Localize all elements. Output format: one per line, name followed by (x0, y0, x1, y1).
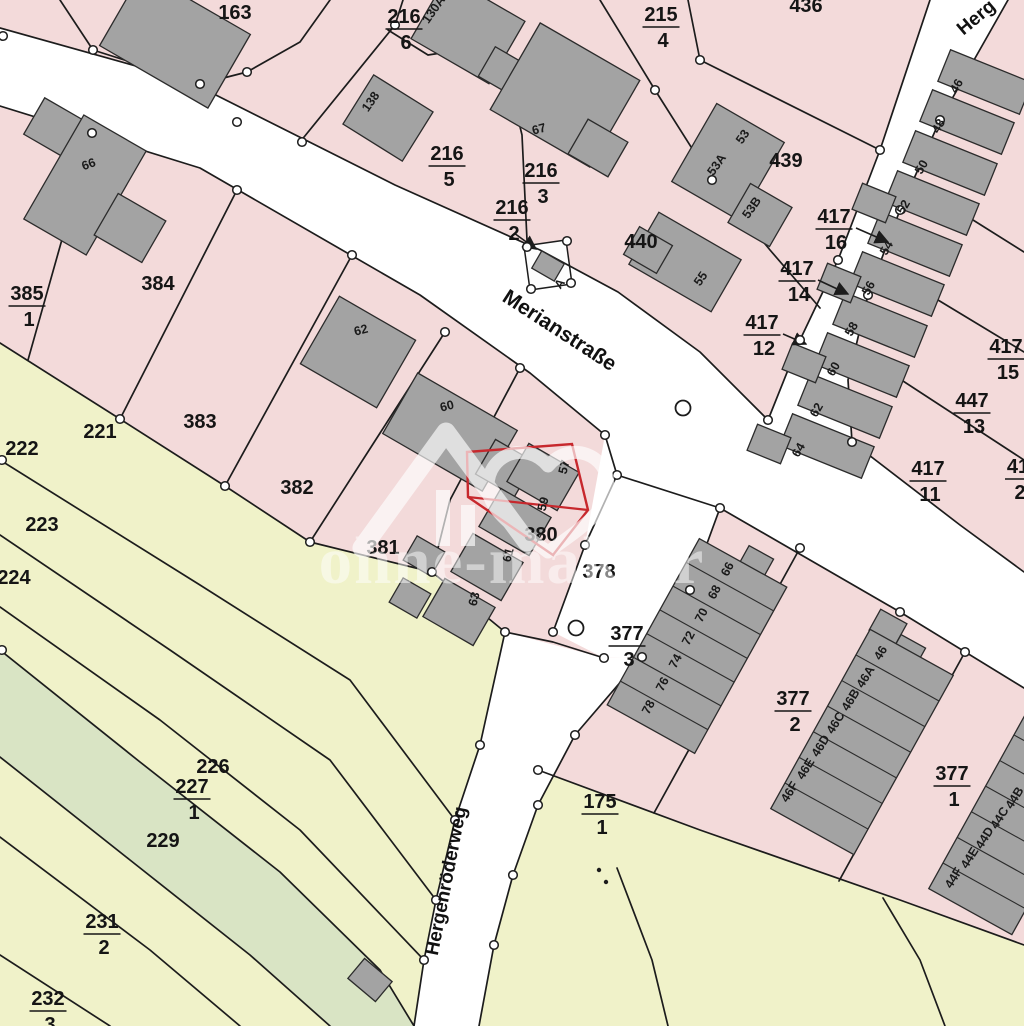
survey-marker (796, 544, 805, 553)
parcel-label: 226 (196, 756, 229, 778)
parcel-denominator: 16 (825, 232, 847, 254)
survey-marker (501, 628, 510, 637)
survey-marker (221, 482, 230, 491)
parcel-number: 377 (935, 763, 968, 785)
survey-marker (848, 438, 857, 447)
parcel-denominator: 3 (537, 186, 548, 208)
parcel-number: 232 (31, 988, 64, 1010)
parcel-number: 447 (955, 390, 988, 412)
parcel-denominator: 6 (400, 32, 411, 54)
parcel-label: 224 (0, 567, 32, 589)
survey-marker (571, 731, 580, 740)
parcel-label: 163 (218, 2, 251, 24)
parcel-number: 216 (430, 143, 463, 165)
parcel-denominator: 3 (44, 1014, 55, 1026)
parcel-number: 377 (776, 688, 809, 710)
survey-marker (243, 68, 252, 77)
parcel-denominator: 1 (596, 817, 607, 839)
parcel-label: 384 (141, 273, 175, 295)
parcel-number: 439 (769, 150, 802, 172)
survey-marker (601, 431, 610, 440)
survey-marker (534, 801, 543, 810)
parcel-number: 440 (624, 231, 657, 253)
survey-marker (567, 279, 576, 288)
parcel-number: 384 (141, 273, 175, 295)
survey-marker (88, 129, 97, 138)
survey-marker (516, 364, 525, 373)
survey-marker (116, 415, 125, 424)
survey-marker (523, 243, 532, 252)
parcel-number: 215 (644, 4, 677, 26)
survey-marker (476, 741, 485, 750)
parcel-denominator: 13 (963, 416, 985, 438)
parcel-number: 417 (989, 336, 1022, 358)
survey-marker (527, 285, 536, 294)
survey-marker (306, 538, 315, 547)
point-dot (597, 868, 601, 872)
survey-marker (89, 46, 98, 55)
parcel-denominator: 12 (753, 338, 775, 360)
survey-marker (441, 328, 450, 337)
survey-marker (490, 941, 499, 950)
parcel-number: 385 (10, 283, 43, 305)
parcel-number: 436 (789, 0, 822, 17)
survey-marker (298, 138, 307, 147)
parcel-denominator: 2 (789, 714, 800, 736)
parcel-number: 417 (780, 258, 813, 280)
parcel-label: 221 (83, 421, 116, 443)
survey-marker (0, 32, 7, 41)
survey-marker (896, 608, 905, 617)
watermark-text: ohne-makler (319, 524, 706, 598)
parcel-number: 163 (218, 2, 251, 24)
parcel-number: 417 (817, 206, 850, 228)
survey-marker (0, 646, 6, 655)
parcel-denominator: 1 (23, 309, 34, 331)
parcel-denominator: 2 (1014, 482, 1024, 504)
cadastral-map-screenshot: 1633851384216621652163216221544364394404… (0, 0, 1024, 1026)
survey-marker (348, 251, 357, 260)
parcel-label: 439 (769, 150, 802, 172)
parcel-number: 382 (280, 477, 313, 499)
parcel-number: 226 (196, 756, 229, 778)
parcel-number: 227 (175, 776, 208, 798)
parcel-label: 383 (183, 411, 216, 433)
parcel-number: 417 (911, 458, 944, 480)
parcel-number: 222 (5, 438, 38, 460)
parcel-number: 229 (146, 830, 179, 852)
parcel-number: 175 (583, 791, 616, 813)
parcel-label: 382 (280, 477, 313, 499)
survey-marker (549, 628, 558, 637)
survey-marker (764, 416, 773, 425)
point-dot (604, 880, 608, 884)
parcel-number: 377 (610, 623, 643, 645)
survey-marker (563, 237, 572, 246)
survey-marker (876, 146, 885, 155)
parcel-number: 41 (1007, 456, 1024, 478)
survey-marker (651, 86, 660, 95)
survey-marker (420, 956, 429, 965)
survey-marker-large (569, 621, 584, 636)
survey-marker (196, 80, 205, 89)
parcel-denominator: 2 (98, 937, 109, 959)
survey-marker (638, 653, 647, 662)
parcel-denominator: 4 (657, 30, 669, 52)
parcel-label: 440 (624, 231, 657, 253)
parcel-denominator: 1 (948, 789, 959, 811)
survey-marker (600, 654, 609, 663)
parcel-number: 221 (83, 421, 116, 443)
survey-marker (509, 871, 518, 880)
survey-marker (796, 336, 805, 345)
parcel-label: 222 (5, 438, 38, 460)
parcel-number: 223 (25, 514, 58, 536)
survey-marker-large (676, 401, 691, 416)
survey-marker (834, 256, 843, 265)
parcel-number: 216 (387, 6, 420, 28)
survey-marker (233, 118, 242, 127)
parcel-number: 417 (745, 312, 778, 334)
survey-marker (613, 471, 622, 480)
survey-marker (961, 648, 970, 657)
parcel-label: 229 (146, 830, 179, 852)
parcel-label: 223 (25, 514, 58, 536)
parcel-number: 216 (495, 197, 528, 219)
parcel-denominator: 11 (919, 484, 940, 506)
parcel-denominator: 2 (508, 223, 519, 245)
survey-marker (534, 766, 543, 775)
parcel-number: 216 (524, 160, 557, 182)
survey-marker (696, 56, 705, 65)
parcel-label: 436 (789, 0, 822, 17)
survey-marker (233, 186, 242, 195)
parcel-denominator: 1 (188, 802, 199, 824)
parcel-denominator: 3 (623, 649, 634, 671)
parcel-denominator: 5 (443, 169, 454, 191)
parcel-denominator: 14 (788, 284, 811, 306)
parcel-number: 231 (85, 911, 118, 933)
parcel-number: 224 (0, 567, 32, 589)
parcel-denominator: 15 (997, 362, 1019, 384)
parcel-number: 383 (183, 411, 216, 433)
survey-marker (716, 504, 725, 513)
map-canvas: 1633851384216621652163216221544364394404… (0, 0, 1024, 1026)
